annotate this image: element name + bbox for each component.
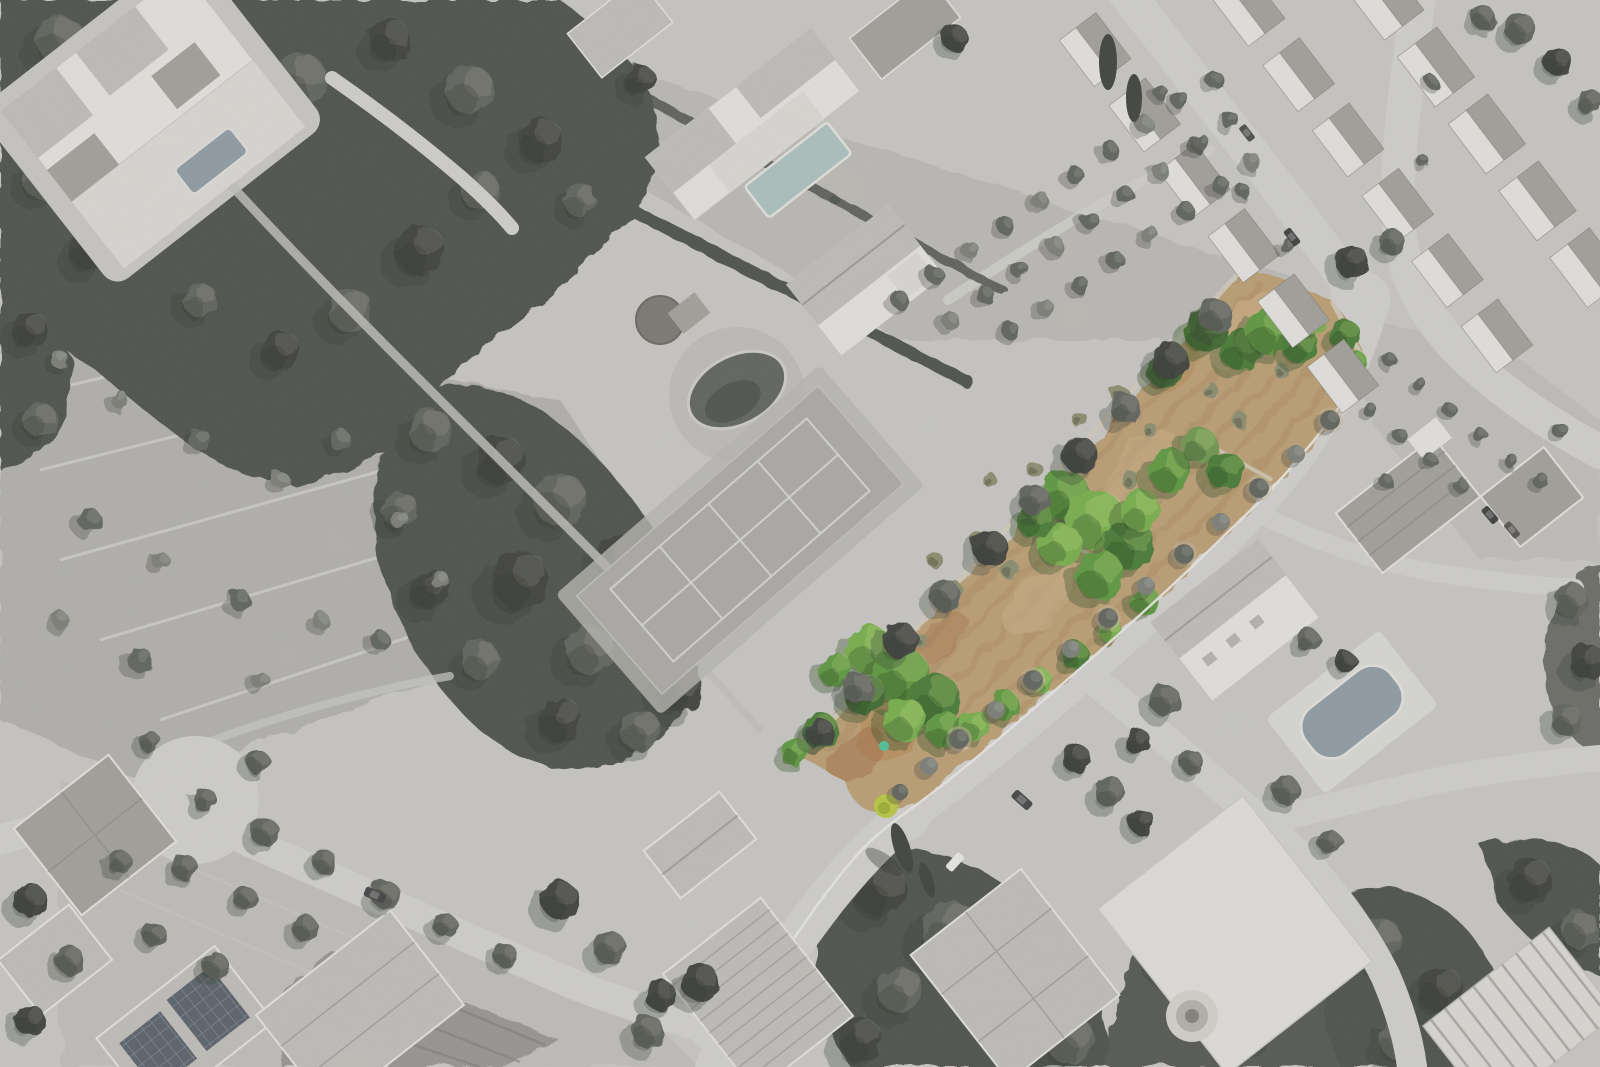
aerial-photo-canvas: Grayscale aerial view of a Mediterranean… [0, 0, 1600, 1067]
film-grain-overlay [0, 0, 1600, 1067]
aerial-photo: Grayscale aerial view of a Mediterranean… [0, 0, 1600, 1067]
